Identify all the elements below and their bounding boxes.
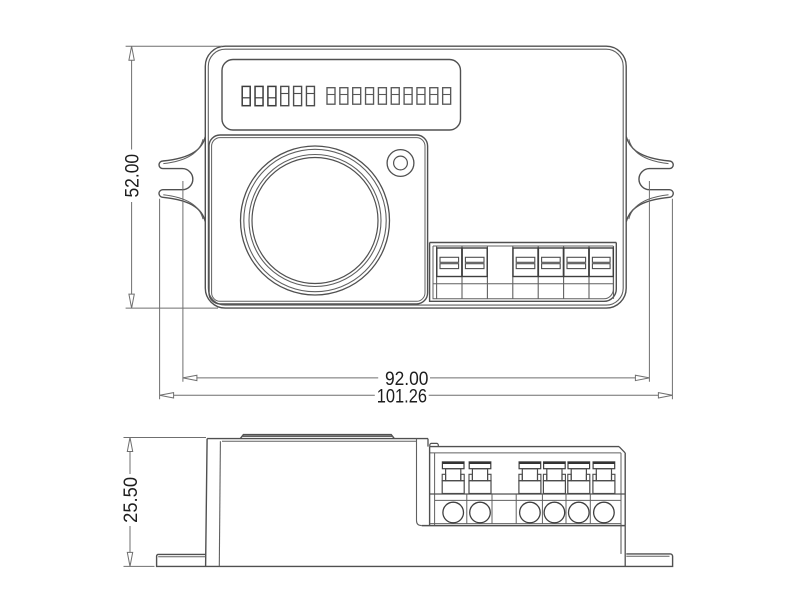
svg-text:25.50: 25.50: [120, 477, 142, 523]
svg-text:101.26: 101.26: [377, 386, 427, 408]
svg-text:52.00: 52.00: [122, 154, 144, 198]
